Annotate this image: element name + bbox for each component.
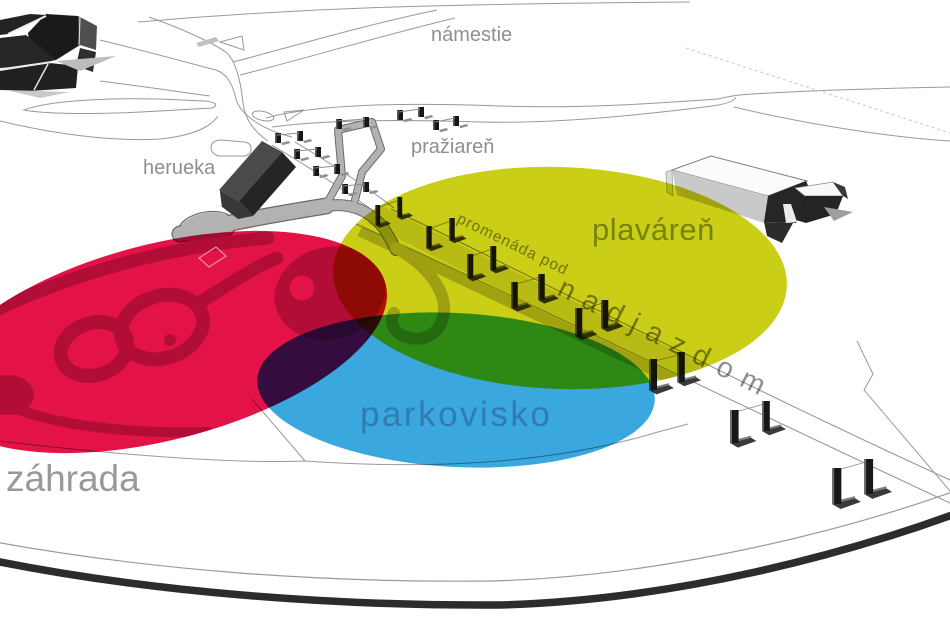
svg-text:záhrada: záhrada xyxy=(6,458,140,499)
svg-text:pražiareň: pražiareň xyxy=(411,136,494,158)
svg-text:plaváreň: plaváreň xyxy=(592,212,715,247)
svg-text:parkovisko: parkovisko xyxy=(360,395,552,434)
svg-text:herueka: herueka xyxy=(143,157,216,179)
svg-text:námestie: námestie xyxy=(431,24,512,46)
